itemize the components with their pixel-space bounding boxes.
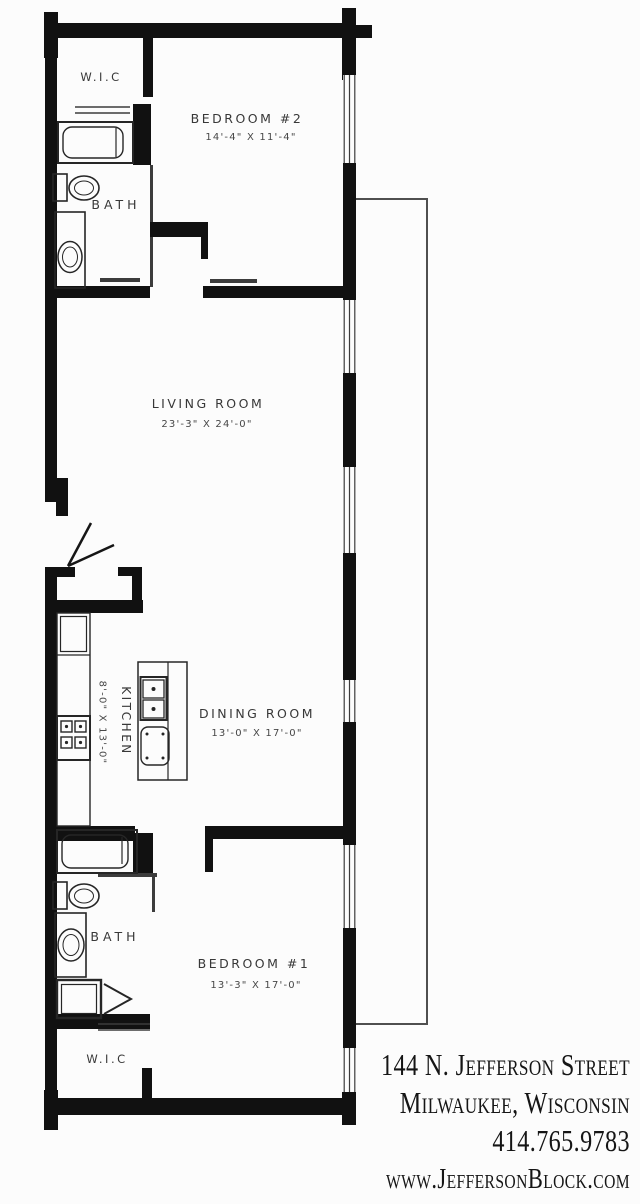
bathtub-icon [58,122,133,163]
address-block: 144 N. Jefferson Street Milwaukee, Wisco… [300,1046,630,1198]
room-label-dining-room: DINING ROOM [177,706,337,721]
closet-rod-icon [75,107,130,113]
entry-door-swing [68,523,114,566]
room-label-bedroom1: BEDROOM #1 [174,956,334,971]
floorplan-drawing [0,0,640,1204]
window-icon [343,300,356,373]
room-label-bedroom2: BEDROOM #2 [167,111,327,126]
room-label-wic-bottom: W.I.C [67,1052,147,1066]
room-dims-bedroom1: 13'-3" X 17'-0" [176,980,336,991]
room-label-kitchen: KITCHEN [119,676,133,766]
balcony-outline [356,199,427,1024]
window-icon [343,680,356,722]
vanity-sink-icon [55,212,85,288]
toilet-icon [53,882,99,909]
room-dims-living-room: 23'-3" X 24'-0" [127,419,287,430]
vanity-sink-icon [55,913,86,977]
room-dims-dining-room: 13'-0" X 17'-0" [177,728,337,739]
window-icon [343,845,356,928]
room-label-wic-top: W.I.C [61,70,141,84]
floorplan-page: W.I.C BEDROOM #2 14'-4" X 11'-4" BATH LI… [0,0,640,1204]
room-dims-bedroom2: 14'-4" X 11'-4" [171,132,331,143]
shower-icon [57,980,131,1018]
room-label-bath-top: BATH [76,197,156,212]
room-dims-kitchen: 8'-0" X 13'-0" [97,668,108,778]
kitchen-island-icon [138,662,187,780]
phone-number: 414.765.9783 [373,1122,630,1160]
address-line-2: Milwaukee, Wisconsin [373,1084,630,1122]
window-icon [343,467,356,553]
address-line-1: 144 N. Jefferson Street [373,1046,630,1084]
kitchen-counter-icon [57,613,90,826]
room-label-living-room: LIVING ROOM [128,396,288,411]
website-url: www.JeffersonBlock.com [373,1160,630,1198]
window-icon [343,75,356,163]
room-label-bath-bottom: BATH [75,929,155,944]
stove-icon [57,716,90,760]
